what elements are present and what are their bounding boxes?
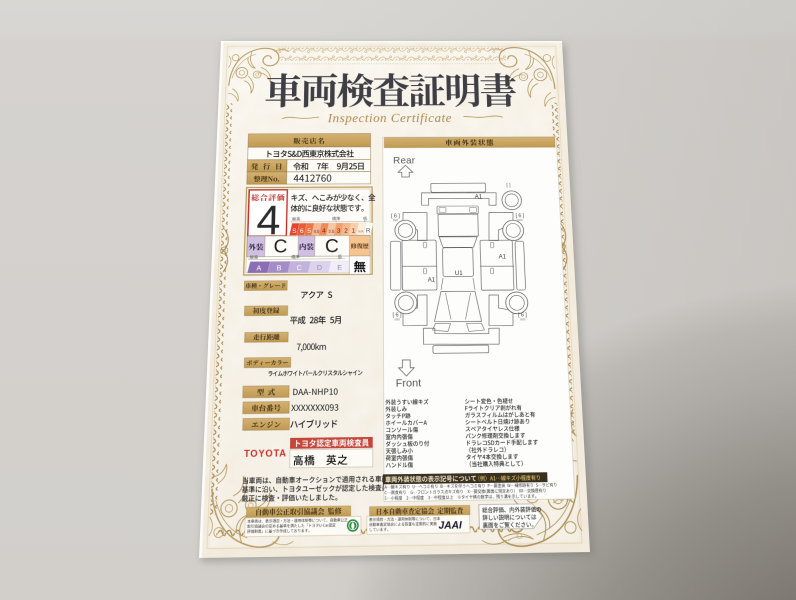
svg-text:C: C	[325, 235, 339, 256]
svg-text:C: C	[297, 265, 303, 273]
svg-text:R: R	[366, 228, 371, 234]
svg-text:C: C	[273, 235, 287, 256]
svg-text:JAAI: JAAI	[438, 519, 462, 532]
svg-text:S: S	[292, 229, 297, 235]
svg-text:N/A: N/A	[358, 229, 363, 233]
svg-text:4.5: 4.5	[314, 229, 320, 234]
svg-text:E: E	[337, 265, 342, 273]
svg-text:mm: mm	[520, 317, 526, 321]
svg-text:D: D	[317, 265, 323, 273]
svg-text:A1: A1	[428, 277, 436, 284]
svg-text:U1: U1	[455, 271, 463, 278]
svg-text:[ ]: [ ]	[506, 182, 510, 187]
svg-text:Rear: Rear	[393, 155, 415, 165]
svg-text:A1: A1	[499, 254, 507, 260]
svg-text:B: B	[277, 265, 282, 273]
svg-text:Inspection Certificate: Inspection Certificate	[327, 111, 453, 125]
svg-text:mm: mm	[517, 218, 523, 222]
svg-text:A1: A1	[475, 194, 482, 200]
svg-text:mm: mm	[393, 218, 399, 222]
svg-text:Front: Front	[396, 377, 422, 390]
svg-text:3.5: 3.5	[328, 228, 334, 233]
svg-text:TOYOTA: TOYOTA	[244, 448, 287, 459]
svg-text:mm: mm	[394, 317, 400, 321]
